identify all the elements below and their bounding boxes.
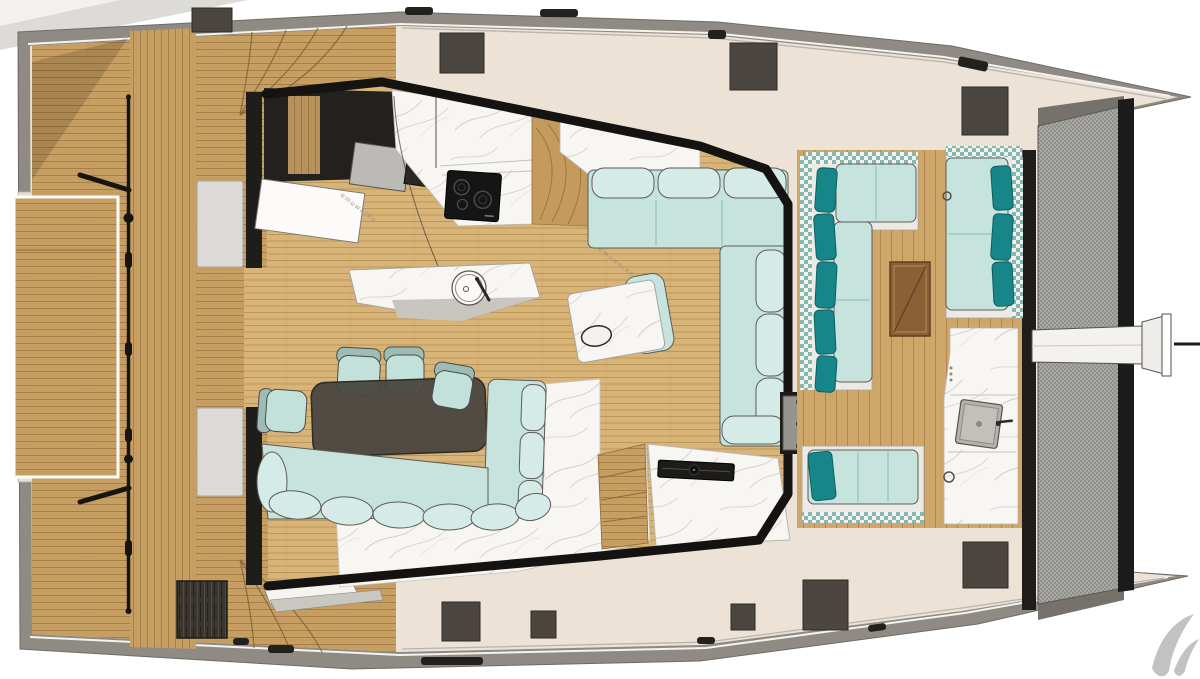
deck-hatch <box>963 542 1008 588</box>
deck-hatch <box>531 611 556 638</box>
deck-hatch <box>440 33 484 73</box>
dining-chair-left <box>257 388 308 435</box>
deck-hatch <box>442 602 480 641</box>
sun-bench <box>802 446 924 523</box>
induction-cooktop <box>444 170 501 222</box>
deck-hatch <box>730 43 777 90</box>
engine-hatch <box>177 581 227 638</box>
aft-bulkhead-top <box>246 92 262 268</box>
cocktail-table <box>890 262 930 336</box>
deck-hatch <box>192 8 232 32</box>
wet-bar <box>944 328 1018 524</box>
galley-wood-slats <box>288 96 320 174</box>
side-table <box>567 279 666 363</box>
dining-chair-3 <box>428 361 475 411</box>
aft-bench-top <box>197 181 243 267</box>
salon: emuwerke emuwerke <box>244 82 804 587</box>
companionway-stairs <box>598 444 648 549</box>
catamaran-deck-plan: emuwerke emuwerke <box>0 0 1200 679</box>
forward-bulkhead-bar <box>1022 150 1036 610</box>
deck-plan-drawing: emuwerke emuwerke <box>0 0 1200 679</box>
aft-swim-platform <box>14 197 118 477</box>
aft-teak-column <box>130 28 196 649</box>
aft-door-passage <box>244 268 268 408</box>
starboard-sofa <box>946 146 1023 318</box>
deck-hatch <box>962 87 1008 135</box>
aft-bench-bottom <box>197 408 243 496</box>
deck-hatch <box>803 580 848 630</box>
deck-hatch <box>731 604 755 630</box>
